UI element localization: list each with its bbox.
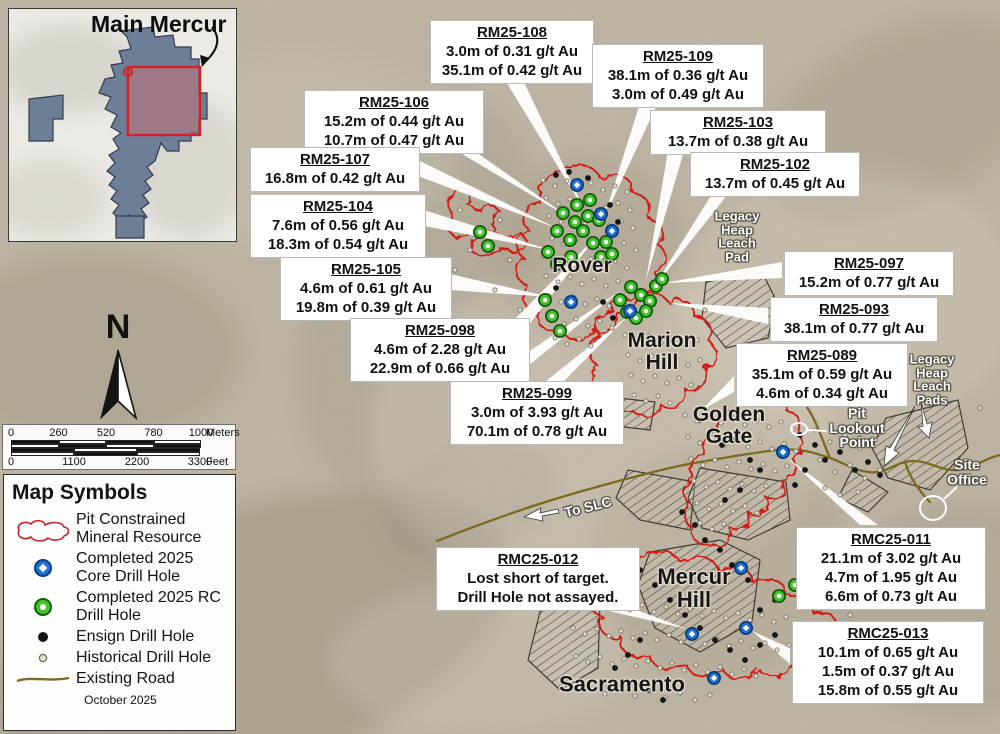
assay-line: 6.6m of 0.73 g/t Au: [801, 587, 981, 606]
drill-hole-id: RM25-099: [455, 384, 619, 403]
assay-line: 4.6m of 2.28 g/t Au: [355, 340, 525, 359]
assay-results: 4.6m of 2.28 g/t Au22.9m of 0.66 g/t Au: [355, 340, 525, 378]
callout-RM25-093: RM25-093 38.1m of 0.77 g/t Au: [770, 297, 938, 342]
assay-line: 3.0m of 0.31 g/t Au: [435, 42, 589, 61]
legend-item-label: Ensign Drill Hole: [76, 628, 194, 646]
pit-symbol-icon: [10, 513, 76, 545]
drill-hole-id: RM25-104: [255, 197, 421, 216]
inset-title: Main Mercur: [91, 11, 226, 38]
callout-RM25-098: RM25-098 4.6m of 2.28 g/t Au22.9m of 0.6…: [350, 318, 530, 382]
legend-item-label: Completed 2025 RC Drill Hole: [76, 589, 231, 625]
legend-title: Map Symbols: [12, 481, 231, 505]
assay-results: 3.0m of 3.93 g/t Au70.1m of 0.78 g/t Au: [455, 403, 619, 441]
drill-hole-id: RM25-098: [355, 321, 525, 340]
assay-line: Lost short of target.: [441, 569, 635, 588]
assay-line: 3.0m of 0.49 g/t Au: [597, 85, 759, 104]
assay-line: 4.6m of 0.34 g/t Au: [741, 384, 903, 403]
assay-line: 13.7m of 0.38 g/t Au: [655, 132, 821, 151]
scalebar-tick: Feet: [206, 456, 228, 468]
assay-line: 16.8m of 0.42 g/t Au: [255, 169, 415, 188]
assay-results: 15.2m of 0.77 g/t Au: [789, 273, 949, 292]
map-figure: N Main Mercur: [0, 0, 1000, 734]
drill-hole-id: RMC25-013: [797, 624, 979, 643]
assay-results: 13.7m of 0.45 g/t Au: [695, 174, 855, 193]
callout-RM25-107: RM25-107 16.8m of 0.42 g/t Au: [250, 147, 420, 192]
assay-line: Drill Hole not assayed.: [441, 588, 635, 607]
legend-item-ensign: Ensign Drill Hole: [10, 628, 231, 646]
scalebar-segment: [137, 452, 200, 456]
assay-results: 13.7m of 0.38 g/t Au: [655, 132, 821, 151]
assay-line: 19.8m of 0.39 g/t Au: [285, 298, 447, 317]
north-arrow: N: [88, 302, 152, 428]
drill-hole-id: RM25-103: [655, 113, 821, 132]
drill-hole-id: RM25-093: [775, 300, 933, 319]
callout-RM25-097: RM25-097 15.2m of 0.77 g/t Au: [784, 251, 954, 296]
scalebar-tick: 260: [49, 427, 67, 439]
callout-RM25-109: RM25-109 38.1m of 0.36 g/t Au3.0m of 0.4…: [592, 44, 764, 108]
callout-RM25-105: RM25-105 4.6m of 0.61 g/t Au19.8m of 0.3…: [280, 257, 452, 321]
legend-date: October 2025: [10, 693, 231, 707]
assay-line: 70.1m of 0.78 g/t Au: [455, 422, 619, 441]
drill-hole-id: RM25-109: [597, 47, 759, 66]
legend-item-label: Pit Constrained Mineral Resource: [76, 511, 231, 547]
assay-results: 3.0m of 0.31 g/t Au35.1m of 0.42 g/t Au: [435, 42, 589, 80]
drill-hole-id: RMC25-011: [801, 530, 981, 549]
assay-line: 7.6m of 0.56 g/t Au: [255, 216, 421, 235]
inset-location-map: Main Mercur: [8, 8, 237, 242]
drill-hole-id: RM25-105: [285, 260, 447, 279]
callout-RM25-103: RM25-103 13.7m of 0.38 g/t Au: [650, 110, 826, 155]
legend-item-rc: Completed 2025 RC Drill Hole: [10, 589, 231, 625]
callout-RM25-104: RM25-104 7.6m of 0.56 g/t Au18.3m of 0.5…: [250, 194, 426, 258]
legend-item-label: Completed 2025 Core Drill Hole: [76, 550, 231, 586]
legend-item-label: Historical Drill Hole: [76, 649, 211, 667]
callout-RM25-102: RM25-102 13.7m of 0.45 g/t Au: [690, 152, 860, 197]
scalebar-tick: Meters: [206, 427, 240, 439]
scalebar-tick: 2200: [125, 456, 149, 468]
assay-line: 3.0m of 3.93 g/t Au: [455, 403, 619, 422]
scalebar-tick: 1100: [62, 456, 86, 468]
assay-line: 18.3m of 0.54 g/t Au: [255, 235, 421, 254]
assay-line: 15.2m of 0.44 g/t Au: [309, 112, 479, 131]
legend-item-road: Existing Road: [10, 670, 231, 688]
scalebar-segment: [74, 452, 137, 456]
legend-item-pit: Pit Constrained Mineral Resource: [10, 511, 231, 547]
assay-line: 35.1m of 0.42 g/t Au: [435, 61, 589, 80]
drill-hole-id: RM25-107: [255, 150, 415, 169]
drill-hole-id: RM25-089: [741, 346, 903, 365]
assay-results: 38.1m of 0.36 g/t Au3.0m of 0.49 g/t Au: [597, 66, 759, 104]
assay-results: 21.1m of 3.02 g/t Au4.7m of 1.95 g/t Au6…: [801, 549, 981, 606]
assay-line: 35.1m of 0.59 g/t Au: [741, 365, 903, 384]
assay-results: 7.6m of 0.56 g/t Au18.3m of 0.54 g/t Au: [255, 216, 421, 254]
callout-RM25-099: RM25-099 3.0m of 3.93 g/t Au70.1m of 0.7…: [450, 381, 624, 445]
drill-hole-id: RM25-108: [435, 23, 589, 42]
callout-RM25-106: RM25-106 15.2m of 0.44 g/t Au10.7m of 0.…: [304, 90, 484, 154]
callout-RMC25-011: RMC25-011 21.1m of 3.02 g/t Au4.7m of 1.…: [796, 527, 986, 610]
drill-hole-id: RM25-097: [789, 254, 949, 273]
assay-line: 38.1m of 0.36 g/t Au: [597, 66, 759, 85]
legend-item-historical: Historical Drill Hole: [10, 649, 231, 667]
scalebar-tick: 0: [8, 456, 14, 468]
assay-line: 4.7m of 1.95 g/t Au: [801, 568, 981, 587]
assay-results: 35.1m of 0.59 g/t Au4.6m of 0.34 g/t Au: [741, 365, 903, 403]
callout-RMC25-012: RMC25-012 Lost short of target.Drill Hol…: [436, 547, 640, 611]
assay-line: 10.1m of 0.65 g/t Au: [797, 643, 979, 662]
drill-hole-id: RM25-102: [695, 155, 855, 174]
historical-symbol-icon: [10, 651, 76, 665]
drill-hole-id: RMC25-012: [441, 550, 635, 569]
assay-results: 4.6m of 0.61 g/t Au19.8m of 0.39 g/t Au: [285, 279, 447, 317]
scalebar-tick: 520: [97, 427, 115, 439]
drill-hole-id: RM25-106: [309, 93, 479, 112]
assay-results: 16.8m of 0.42 g/t Au: [255, 169, 415, 188]
assay-results: 10.1m of 0.65 g/t Au1.5m of 0.37 g/t Au1…: [797, 643, 979, 700]
ensign-symbol-icon: [10, 629, 76, 645]
assay-results: 15.2m of 0.44 g/t Au10.7m of 0.47 g/t Au: [309, 112, 479, 150]
assay-line: 22.9m of 0.66 g/t Au: [355, 359, 525, 378]
callout-RM25-108: RM25-108 3.0m of 0.31 g/t Au35.1m of 0.4…: [430, 20, 594, 84]
assay-line: 4.6m of 0.61 g/t Au: [285, 279, 447, 298]
rc-symbol-icon: [10, 595, 76, 619]
assay-line: 15.2m of 0.77 g/t Au: [789, 273, 949, 292]
callout-RMC25-013: RMC25-013 10.1m of 0.65 g/t Au1.5m of 0.…: [792, 621, 984, 704]
callout-RM25-089: RM25-089 35.1m of 0.59 g/t Au4.6m of 0.3…: [736, 343, 908, 407]
scalebar-tick: 0: [8, 427, 14, 439]
assay-line: 38.1m of 0.77 g/t Au: [775, 319, 933, 338]
assay-line: 13.7m of 0.45 g/t Au: [695, 174, 855, 193]
assay-results: 38.1m of 0.77 g/t Au: [775, 319, 933, 338]
legend-item-label: Existing Road: [76, 670, 175, 688]
scalebar-tick: 780: [144, 427, 162, 439]
legend-item-core: Completed 2025 Core Drill Hole: [10, 550, 231, 586]
assay-line: 21.1m of 3.02 g/t Au: [801, 549, 981, 568]
assay-line: 1.5m of 0.37 g/t Au: [797, 662, 979, 681]
map-legend: Map Symbols Pit Constrained Mineral Reso…: [3, 474, 236, 731]
assay-line: 15.8m of 0.55 g/t Au: [797, 681, 979, 700]
main-mercur-extent: [128, 67, 200, 135]
scale-bar: 02605207801000Meters0110022003300Feet: [2, 424, 236, 470]
north-label: N: [106, 308, 131, 346]
assay-results: Lost short of target.Drill Hole not assa…: [441, 569, 635, 607]
scalebar-segment: [11, 452, 74, 456]
road-symbol-icon: [10, 673, 76, 685]
core-symbol-icon: [10, 556, 76, 580]
